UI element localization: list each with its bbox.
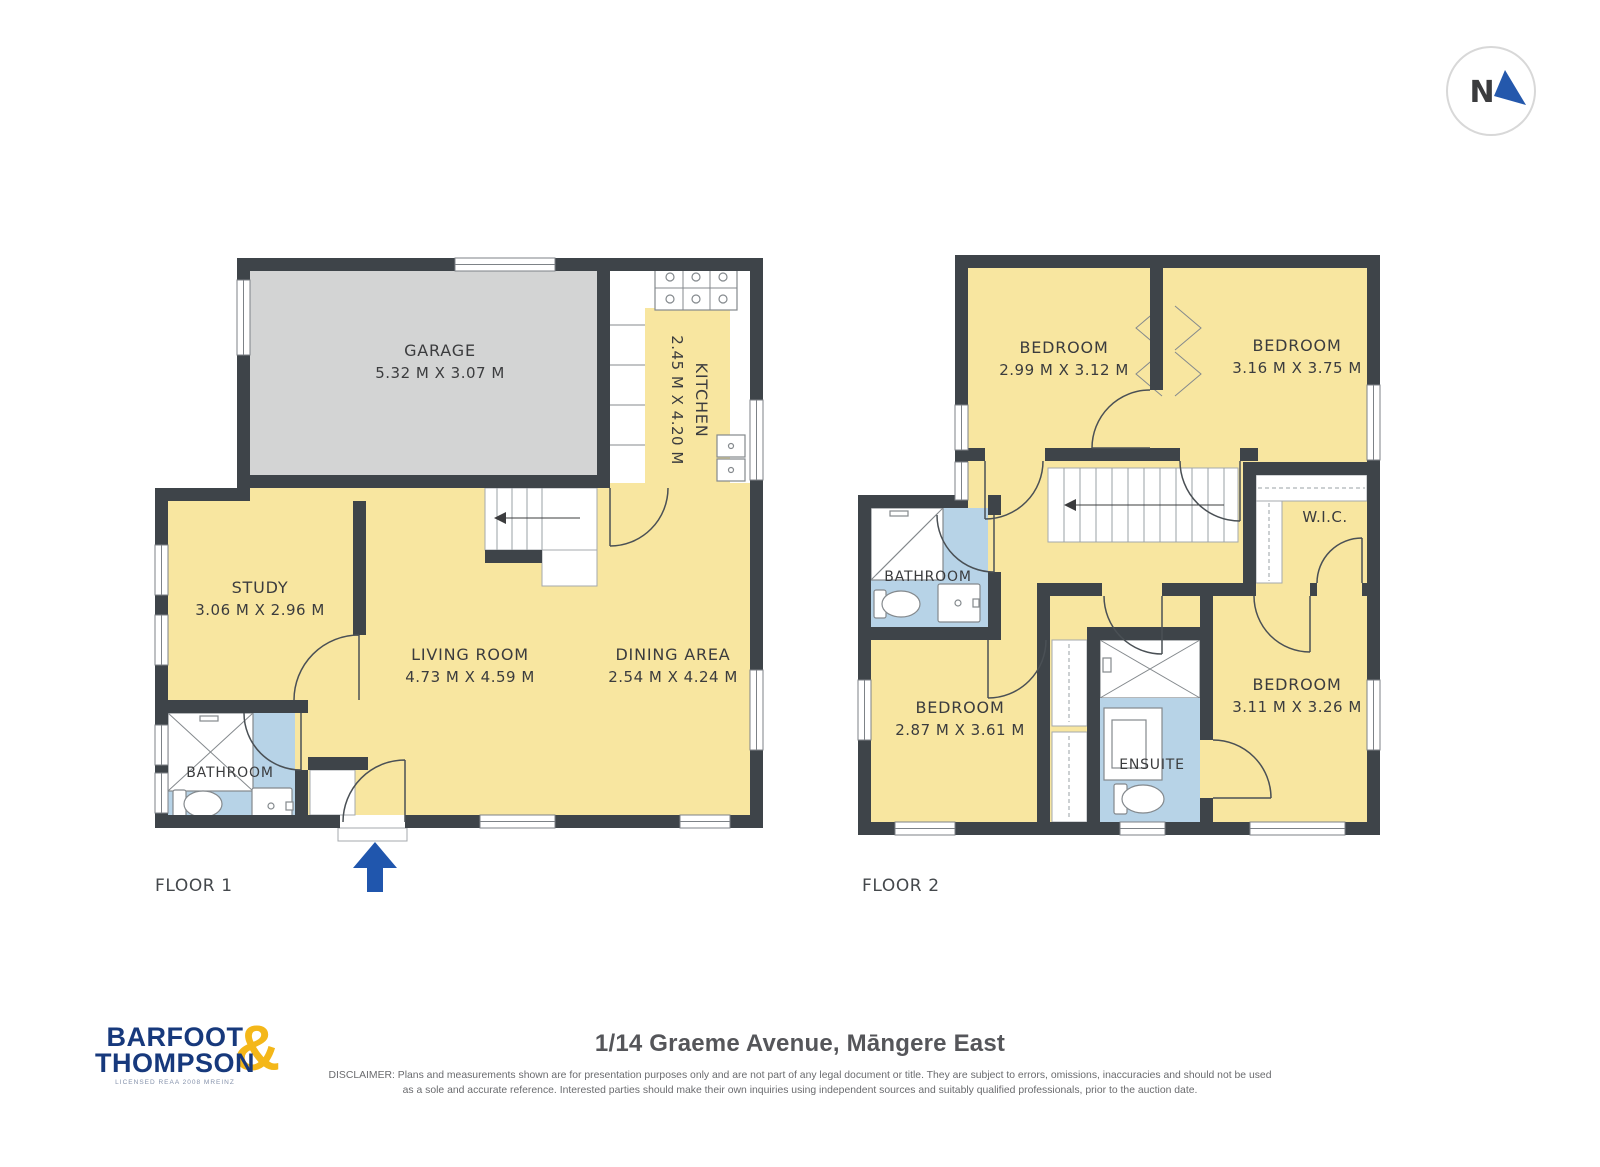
bedroom3-dims: 2.87 M X 3.61 M xyxy=(895,721,1025,739)
sink-icon xyxy=(938,584,980,622)
toilet-icon xyxy=(173,790,222,818)
bedroom4-label: BEDROOM xyxy=(1252,675,1341,694)
living-room-label: LIVING ROOM xyxy=(411,645,529,664)
toilet-icon xyxy=(1114,784,1164,814)
stairs-floor2 xyxy=(1048,468,1238,542)
bedroom1-dims: 2.99 M X 3.12 M xyxy=(999,361,1129,379)
bedroom4-dims: 3.11 M X 3.26 M xyxy=(1232,698,1362,716)
brand-line1: BARFOOT xyxy=(86,1024,264,1050)
ensuite-area xyxy=(1100,640,1200,822)
entry-arrow-icon xyxy=(352,842,398,892)
bedroom3-label: BEDROOM xyxy=(915,698,1004,717)
north-arrow-icon: N xyxy=(1444,44,1538,138)
toilet-icon xyxy=(874,590,920,618)
living-room-dims: 4.73 M X 4.59 M xyxy=(405,668,535,686)
kitchen-label: KITCHEN xyxy=(692,363,711,438)
north-label: N xyxy=(1469,75,1494,110)
floor1-label: FLOOR 1 xyxy=(155,876,233,896)
disclaimer: DISCLAIMER: Plans and measurements shown… xyxy=(220,1069,1380,1098)
disclaimer-line1: DISCLAIMER: Plans and measurements shown… xyxy=(329,1070,1272,1081)
study-dims: 3.06 M X 2.96 M xyxy=(195,601,325,619)
brand-line2: THOMPSON xyxy=(86,1050,264,1076)
wic-label: W.I.C. xyxy=(1302,508,1347,526)
disclaimer-line2: as a sole and accurate reference. Intere… xyxy=(403,1085,1198,1096)
stove-icon xyxy=(655,266,737,310)
floor2-label: FLOOR 2 xyxy=(862,876,940,896)
entry-closet xyxy=(310,770,355,815)
floorplan-page: N xyxy=(0,0,1600,1167)
dining-area-dims: 2.54 M X 4.24 M xyxy=(608,668,738,686)
bedroom2-dims: 3.16 M X 3.75 M xyxy=(1232,359,1362,377)
shower-icon xyxy=(1100,640,1200,698)
bathroom1-label: BATHROOM xyxy=(186,765,273,781)
kitchen-dims: 2.45 M X 4.20 M xyxy=(668,335,686,465)
floor2-plan: BEDROOM 2.99 M X 3.12 M BEDROOM 3.16 M X… xyxy=(820,250,1480,850)
ensuite-label: ENSUITE xyxy=(1119,757,1185,773)
dining-area-label: DINING AREA xyxy=(615,645,730,664)
floor1-plan: GARAGE 5.32 M X 3.07 M KITCHEN 2.45 M X … xyxy=(140,250,800,850)
brand-logo: & BARFOOT THOMPSON LICENSED REAA 2008 MR… xyxy=(86,1024,264,1086)
garage-label: GARAGE xyxy=(404,341,476,360)
bedroom2-label: BEDROOM xyxy=(1252,336,1341,355)
entry-porch xyxy=(338,828,407,841)
garage-dims: 5.32 M X 3.07 M xyxy=(375,364,505,382)
brand-license: LICENSED REAA 2008 MREINZ xyxy=(86,1079,264,1086)
study-label: STUDY xyxy=(232,578,289,597)
bedroom1-label: BEDROOM xyxy=(1019,338,1108,357)
bathroom2-label: BATHROOM xyxy=(884,569,971,585)
